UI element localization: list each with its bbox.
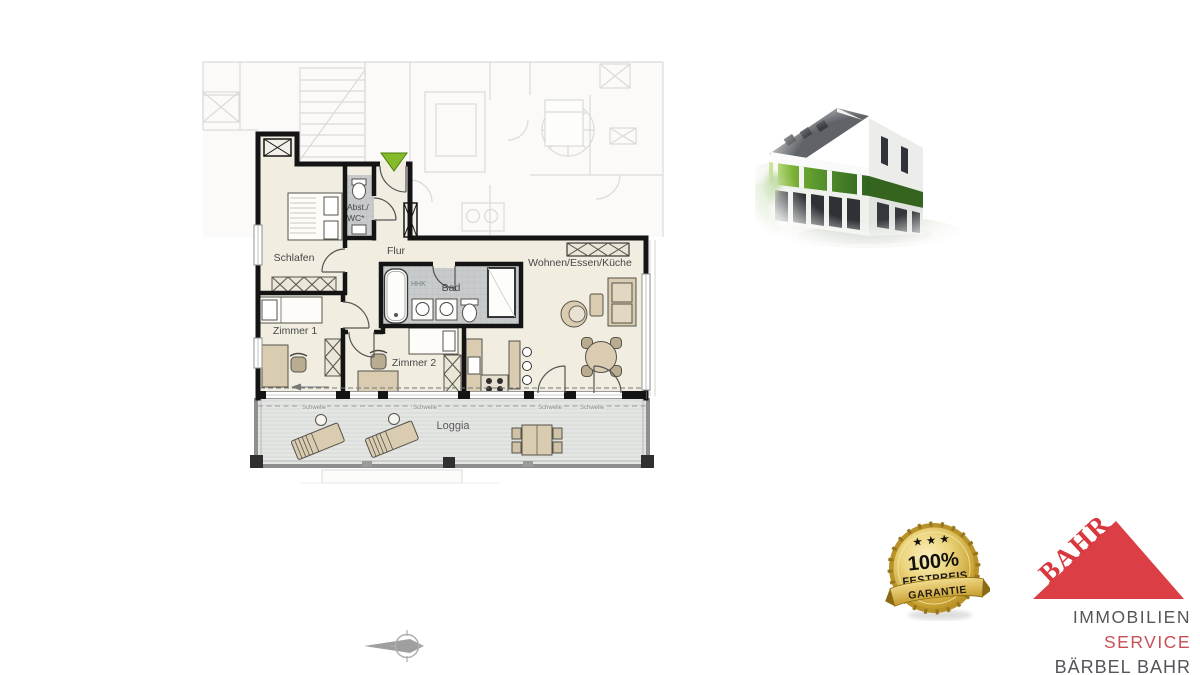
room-label-schlafen: Schlafen bbox=[274, 252, 315, 264]
room-label-abstwc-1: Abst./ bbox=[347, 202, 369, 212]
flyer-canvas: Schlafen Abst./ WC* Flur Wohnen/Essen/Kü… bbox=[0, 0, 1200, 675]
room-label-loggia: Loggia bbox=[436, 420, 470, 432]
threshold-label: Schwelle bbox=[302, 405, 327, 411]
schlafen-wardrobe bbox=[272, 277, 336, 292]
room-label-wohnen: Wohnen/Essen/Küche bbox=[528, 257, 632, 269]
corner-shaft bbox=[264, 139, 291, 156]
floor-plan: Schlafen Abst./ WC* Flur Wohnen/Essen/Kü… bbox=[195, 55, 695, 670]
room-label-flur: Flur bbox=[387, 245, 406, 257]
house-rendering bbox=[755, 96, 980, 254]
festpreis-badge: ★ ★ ★ 100% FESTPREIS GARANTIE bbox=[882, 518, 990, 622]
zimmer1-bed bbox=[259, 297, 322, 323]
sideboard bbox=[567, 243, 629, 256]
logo-line-baerbel-bahr: BÄRBEL BAHR bbox=[1055, 657, 1191, 675]
armchair bbox=[561, 301, 587, 327]
zimmer1-wardrobe bbox=[325, 339, 341, 376]
wc-sink bbox=[352, 225, 366, 234]
wc-toilet bbox=[352, 179, 366, 199]
loggia-post bbox=[641, 455, 654, 468]
north-arrow-icon bbox=[364, 630, 424, 662]
bathtub bbox=[385, 269, 408, 323]
logo-line-service: SERVICE bbox=[1104, 632, 1191, 652]
side-table bbox=[590, 294, 603, 316]
threshold-label: Schwelle bbox=[413, 405, 438, 411]
kitchen-bar bbox=[509, 341, 532, 389]
room-label-bad: Bad bbox=[442, 282, 461, 294]
shower bbox=[488, 268, 515, 317]
kitchen-counter bbox=[466, 339, 482, 394]
heater-label-hhk: HHK bbox=[411, 281, 426, 288]
zimmer2-desk bbox=[358, 371, 398, 393]
threshold-label: Schwelle bbox=[538, 405, 563, 411]
room-label-abstwc-2: WC* bbox=[347, 213, 365, 223]
zimmer1-desk bbox=[262, 345, 288, 387]
zimmer2-bed bbox=[409, 328, 458, 354]
loggia-post bbox=[443, 457, 455, 468]
balcony-below-outline bbox=[300, 470, 500, 483]
dining-table bbox=[582, 338, 622, 377]
schlafen-bed bbox=[288, 193, 342, 240]
bahr-logo: BAHR IMMOBILIEN SERVICE BÄRBEL BAHR bbox=[1025, 512, 1197, 675]
logo-line-immobilien: IMMOBILIEN bbox=[1073, 607, 1191, 627]
loggia-post bbox=[250, 455, 263, 468]
room-label-zimmer2: Zimmer 2 bbox=[392, 357, 436, 369]
sofa bbox=[608, 278, 636, 326]
bath-toilet bbox=[461, 299, 478, 322]
threshold-label: Schwelle bbox=[580, 405, 605, 411]
room-label-zimmer1: Zimmer 1 bbox=[273, 325, 317, 337]
